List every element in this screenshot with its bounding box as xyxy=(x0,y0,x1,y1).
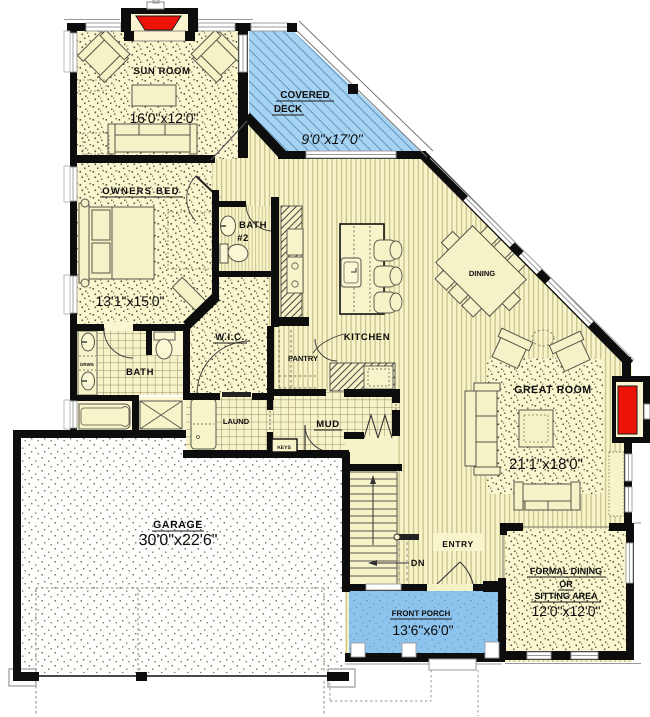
svg-text:9'0"x17'0": 9'0"x17'0" xyxy=(301,131,363,147)
svg-text:MUD: MUD xyxy=(316,419,339,430)
svg-text:OWNERS BED: OWNERS BED xyxy=(102,186,179,197)
svg-text:DRWS: DRWS xyxy=(80,362,94,367)
svg-text:13'6"x6'0": 13'6"x6'0" xyxy=(392,622,453,638)
svg-text:SUN ROOM: SUN ROOM xyxy=(133,66,190,77)
svg-text:COVERED: COVERED xyxy=(280,90,329,101)
svg-text:BATH: BATH xyxy=(239,220,267,231)
svg-text:13'1"x15'0": 13'1"x15'0" xyxy=(95,293,164,309)
svg-text:ENTRY: ENTRY xyxy=(442,539,474,549)
svg-text:BATH: BATH xyxy=(126,367,154,378)
svg-text:PANTRY: PANTRY xyxy=(288,354,318,363)
svg-text:SITTING AREA: SITTING AREA xyxy=(534,591,598,601)
svg-text:16'0"x12'0": 16'0"x12'0" xyxy=(129,110,198,126)
svg-text:GARAGE: GARAGE xyxy=(153,519,203,531)
svg-text:OR: OR xyxy=(559,579,573,589)
svg-text:FRONT PORCH: FRONT PORCH xyxy=(392,609,451,618)
svg-text:30'0"x22'6": 30'0"x22'6" xyxy=(139,532,218,549)
svg-text:DECK: DECK xyxy=(274,104,303,115)
svg-text:W.I.C.: W.I.C. xyxy=(215,332,244,343)
svg-text:DINING: DINING xyxy=(469,269,495,278)
svg-text:LAUND: LAUND xyxy=(223,417,250,426)
svg-text:21'1"x18'0": 21'1"x18'0" xyxy=(509,456,583,473)
svg-text:12'0"x12'0": 12'0"x12'0" xyxy=(531,603,600,619)
svg-text:DN: DN xyxy=(411,558,425,568)
svg-text:GREAT ROOM: GREAT ROOM xyxy=(514,384,592,396)
svg-text:KITCHEN: KITCHEN xyxy=(344,332,390,343)
svg-text:#2: #2 xyxy=(237,233,249,244)
svg-text:FORMAL DINING: FORMAL DINING xyxy=(530,566,602,576)
svg-text:KEYS: KEYS xyxy=(277,445,291,451)
